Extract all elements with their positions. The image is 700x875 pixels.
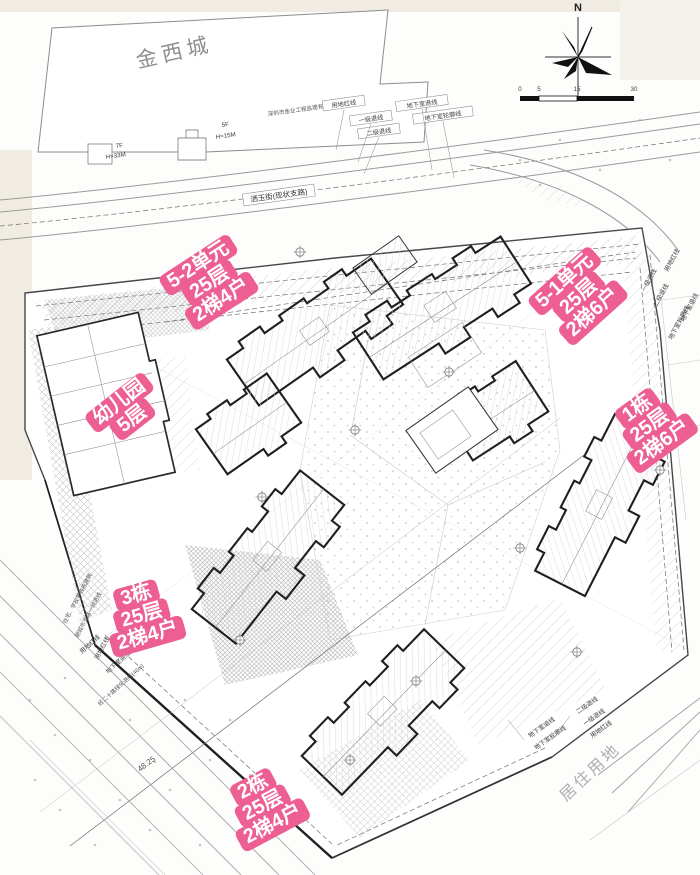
scale-tick-30: 30 [631, 86, 638, 93]
scale-tick-5: 5 [537, 86, 541, 93]
setback-basement-outline-right: 地下室轮廓线 [667, 304, 691, 341]
setback-red-line-right: 用地红线 [663, 247, 682, 273]
note-5f: 5F [221, 121, 229, 129]
scale-tick-15: 15 [574, 86, 581, 93]
note-7f: 7F [115, 142, 123, 150]
neighbor-parcel-north: 金西城 7F H=33M 5F H=15M 深圳市金业工程监理有限公司 [38, 10, 428, 164]
north-arrow-icon: N [545, 2, 612, 99]
note-h33: H=33M [105, 151, 126, 161]
site-plan-canvas: 金西城 7F H=33M 5F H=15M 深圳市金业工程监理有限公司 洒玉街(… [0, 0, 700, 875]
dimension-48-25: 48.25 [136, 754, 158, 774]
north-label: N [574, 2, 582, 14]
scale-tick-0: 0 [518, 86, 522, 93]
parcel-title-residential: 居住用地 [556, 740, 624, 805]
